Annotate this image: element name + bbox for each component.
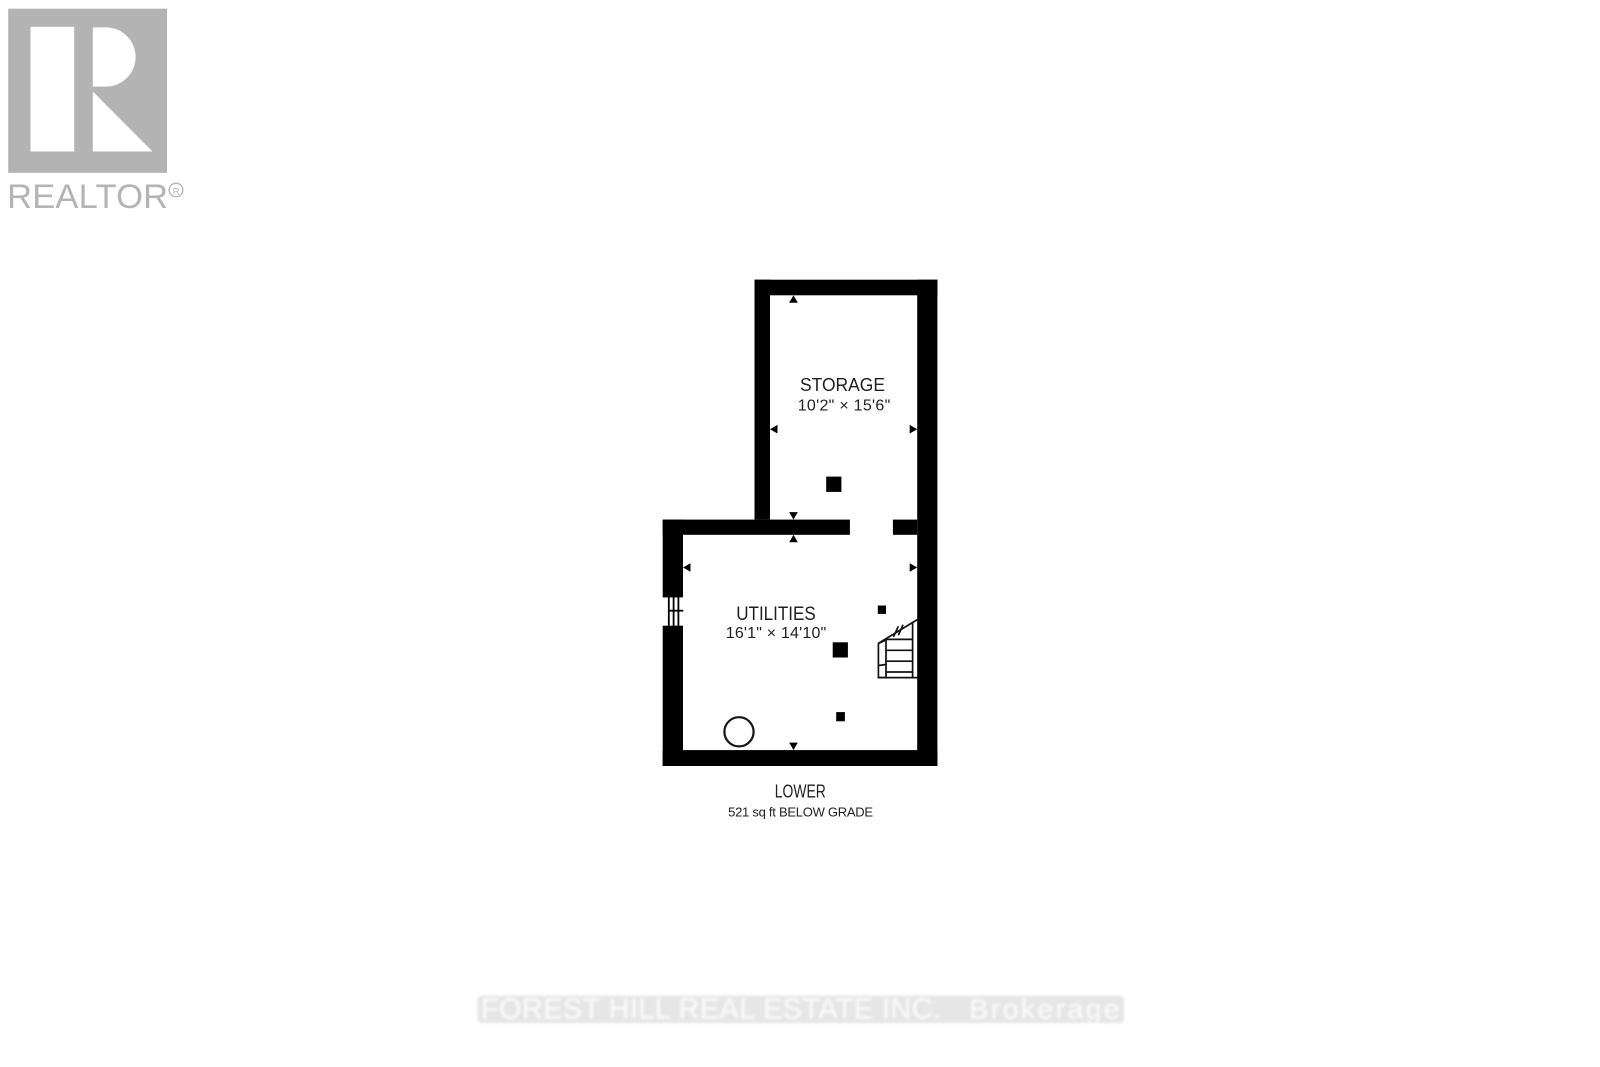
svg-text:REALTOR: REALTOR	[7, 178, 168, 216]
svg-text:521 sq ft BELOW GRADE: 521 sq ft BELOW GRADE	[728, 804, 873, 819]
svg-text:R: R	[173, 187, 180, 198]
svg-text:FOREST HILL REAL ESTATE INC.: FOREST HILL REAL ESTATE INC.	[481, 994, 941, 1026]
svg-text:UTILITIES: UTILITIES	[736, 604, 816, 625]
svg-text:Brokerage: Brokerage	[970, 994, 1120, 1025]
svg-text:16'1" × 14'10": 16'1" × 14'10"	[726, 625, 827, 642]
svg-text:LOWER: LOWER	[775, 782, 826, 802]
svg-text:10'2" × 15'6": 10'2" × 15'6"	[798, 398, 891, 415]
svg-text:STORAGE: STORAGE	[800, 374, 885, 395]
